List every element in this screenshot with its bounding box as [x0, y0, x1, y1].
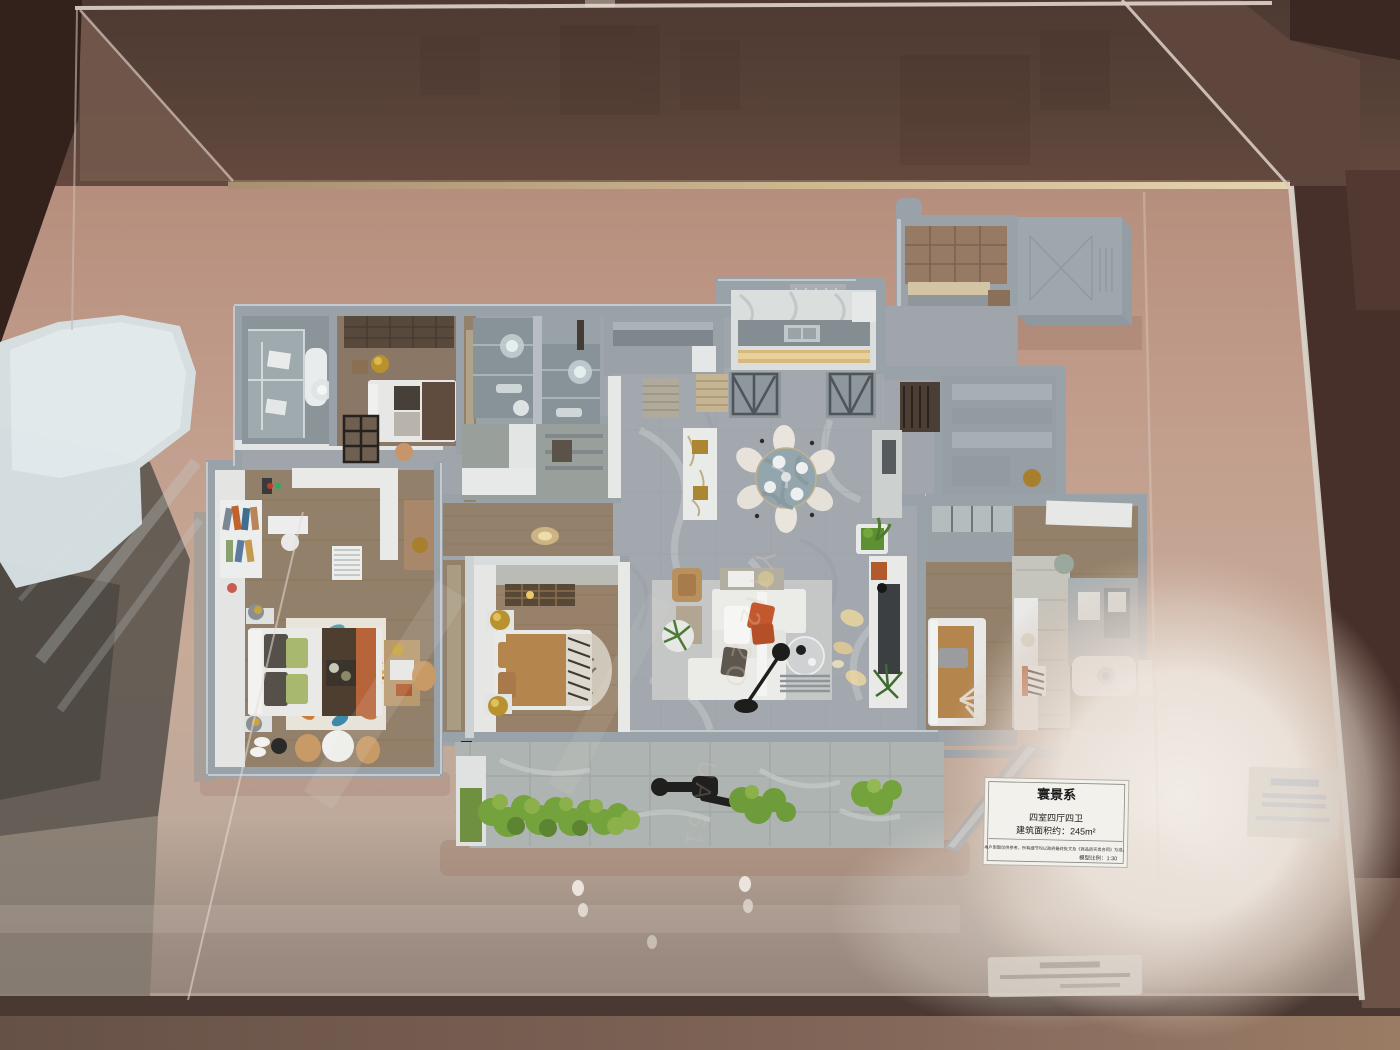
svg-text:四室四厅四卫: 四室四厅四卫 [1029, 811, 1083, 823]
svg-text:建筑面积约：245m²: 建筑面积约：245m² [1016, 824, 1096, 837]
svg-text:寰景系: 寰景系 [1037, 787, 1076, 803]
